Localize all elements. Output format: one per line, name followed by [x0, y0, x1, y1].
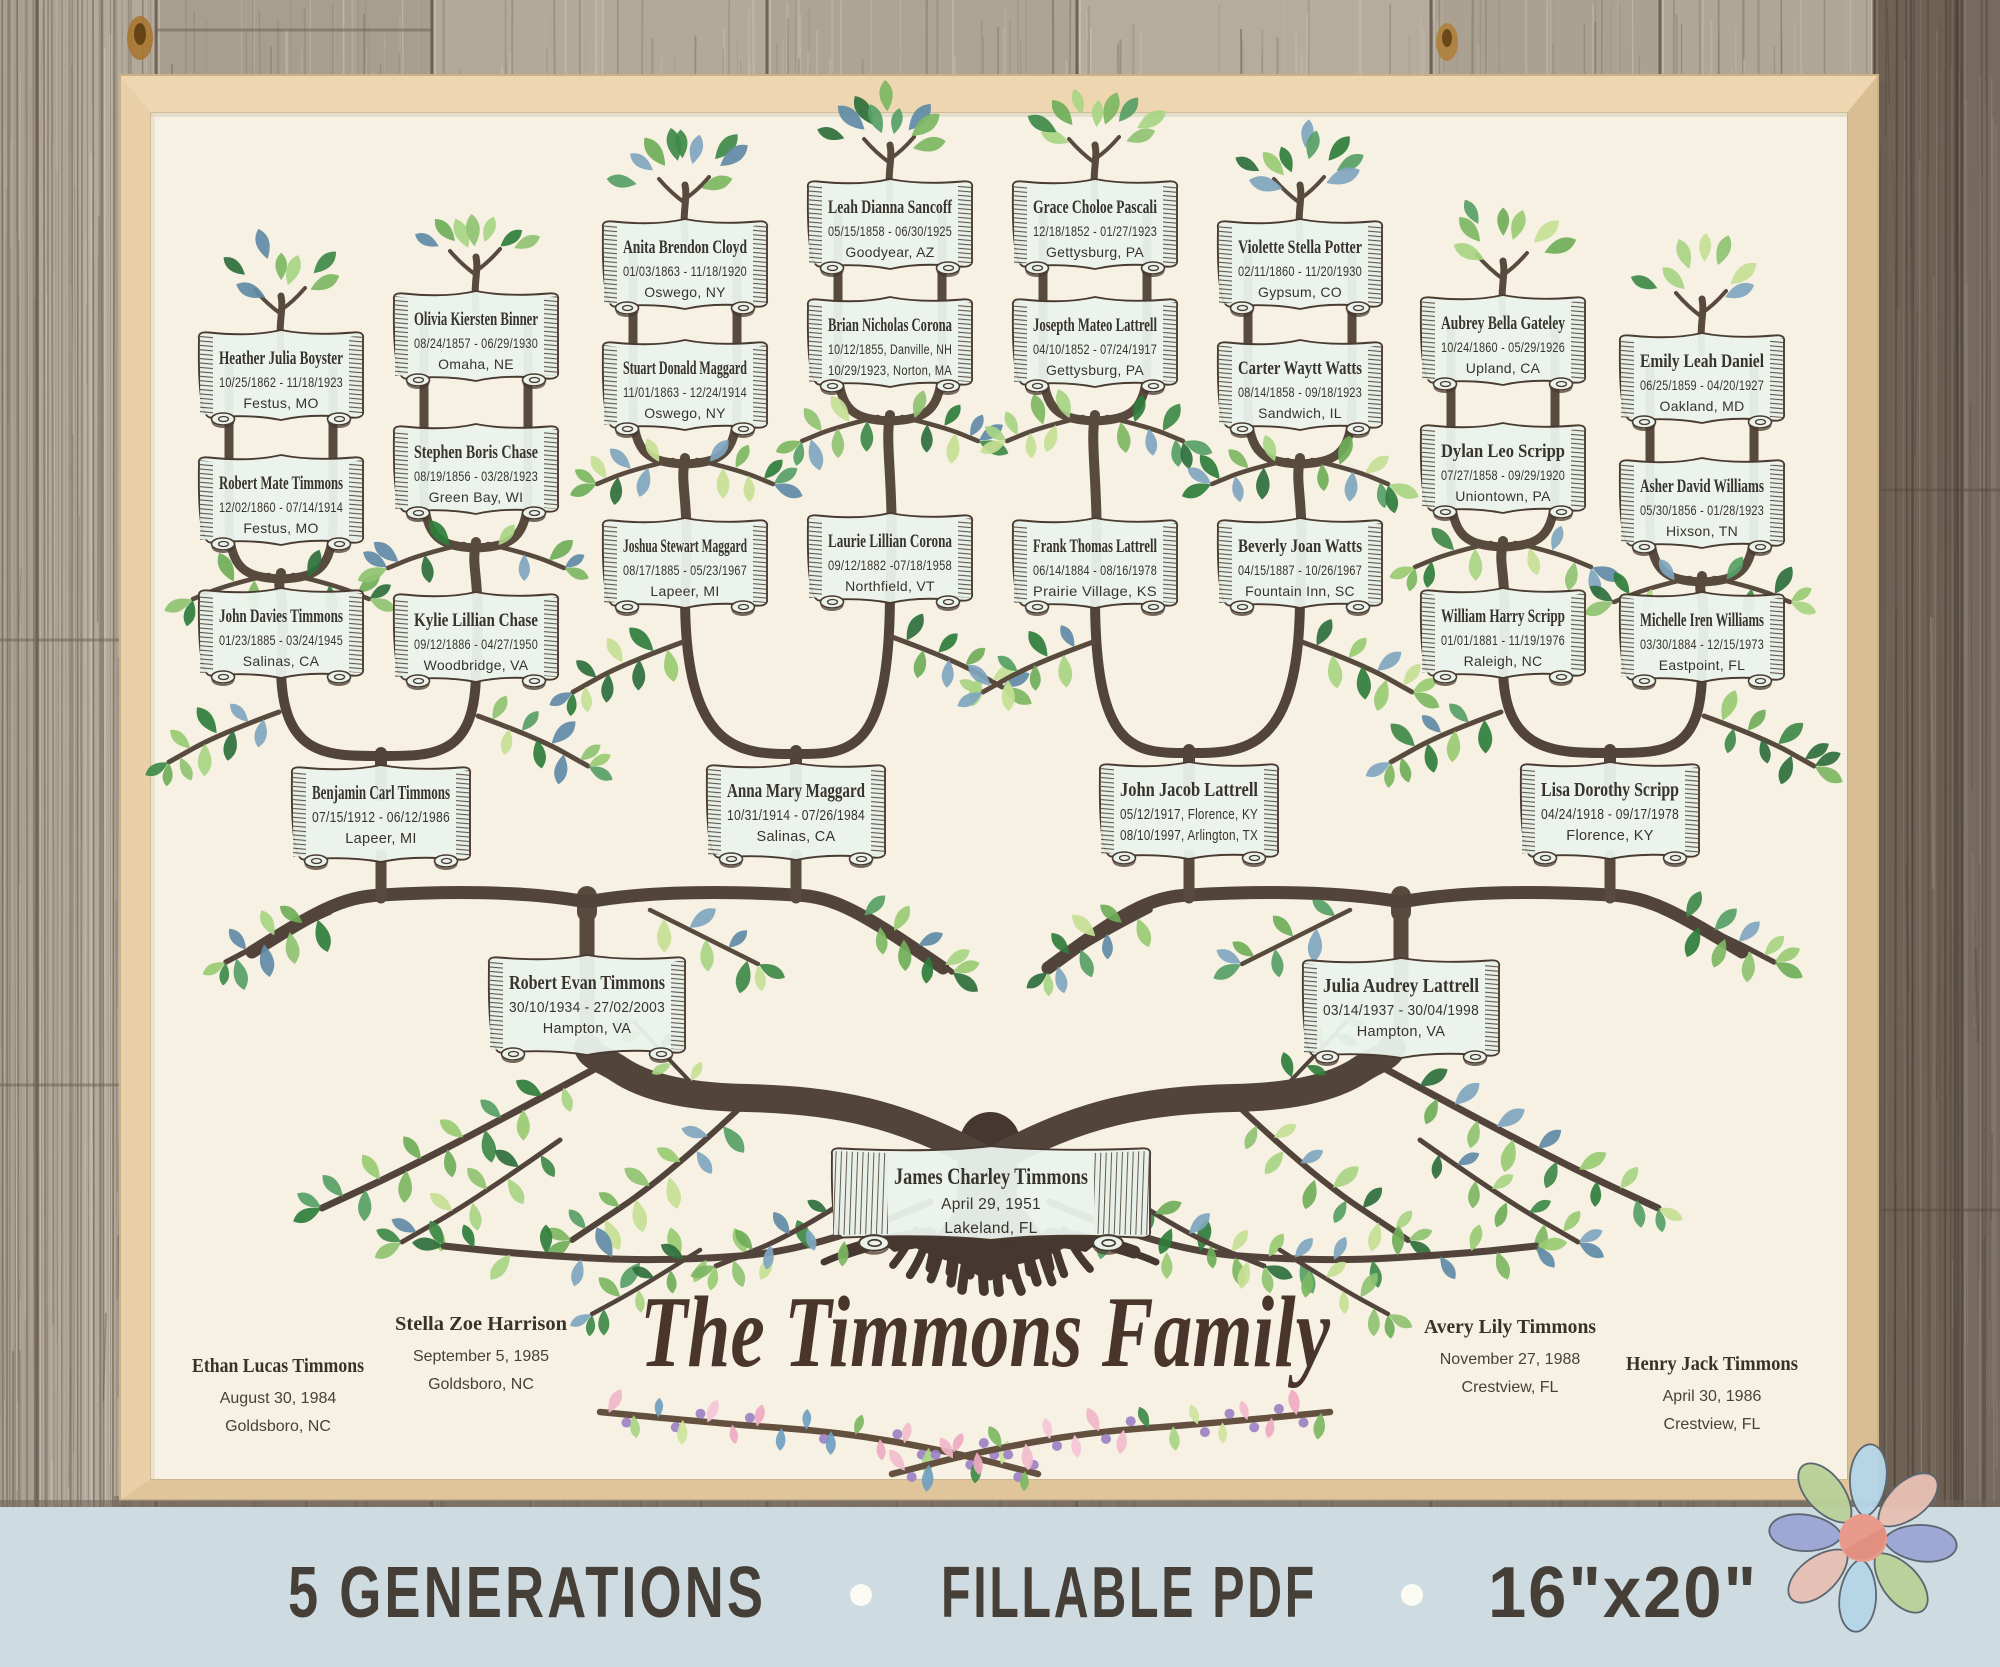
svg-text:11/01/1863 - 12/24/1914: 11/01/1863 - 12/24/1914	[623, 384, 747, 400]
svg-text:01/03/1863 - 11/18/1920: 01/03/1863 - 11/18/1920	[623, 263, 747, 279]
svg-text:April 30, 1986: April 30, 1986	[1663, 1388, 1762, 1405]
svg-text:Prairie Village, KS: Prairie Village, KS	[1033, 583, 1157, 599]
svg-text:John Jacob Lattrell: John Jacob Lattrell	[1120, 779, 1258, 801]
svg-text:Crestview, FL: Crestview, FL	[1664, 1416, 1761, 1433]
svg-text:Robert Mate Timmons: Robert Mate Timmons	[219, 473, 343, 494]
svg-text:Fountain Inn, SC: Fountain Inn, SC	[1245, 583, 1355, 599]
svg-text:Goldsboro, NC: Goldsboro, NC	[428, 1376, 534, 1393]
svg-text:Leah Dianna Sancoff: Leah Dianna Sancoff	[828, 197, 952, 218]
svg-text:04/24/1918 - 09/17/1978: 04/24/1918 - 09/17/1978	[1541, 807, 1679, 823]
svg-text:12/02/1860 - 07/14/1914: 12/02/1860 - 07/14/1914	[219, 499, 343, 515]
svg-text:Hampton, VA: Hampton, VA	[543, 1021, 631, 1037]
svg-text:William Harry Scripp: William Harry Scripp	[1441, 606, 1565, 627]
svg-text:04/15/1887 - 10/26/1967: 04/15/1887 - 10/26/1967	[1238, 562, 1362, 578]
svg-text:Gypsum, CO: Gypsum, CO	[1258, 284, 1342, 300]
svg-text:Upland, CA: Upland, CA	[1466, 360, 1541, 376]
svg-text:Beverly Joan Watts: Beverly Joan Watts	[1238, 536, 1362, 557]
svg-text:10/24/1860 - 05/29/1926: 10/24/1860 - 05/29/1926	[1441, 339, 1565, 355]
svg-text:16"x20": 16"x20"	[1488, 1553, 1758, 1633]
svg-text:Gettysburg, PA: Gettysburg, PA	[1046, 362, 1144, 378]
svg-text:04/10/1852 - 07/24/1917: 04/10/1852 - 07/24/1917	[1033, 341, 1157, 357]
svg-text:03/14/1937 - 30/04/1998: 03/14/1937 - 30/04/1998	[1323, 1003, 1479, 1019]
svg-text:07/15/1912 - 06/12/1986: 07/15/1912 - 06/12/1986	[312, 810, 450, 826]
svg-text:Omaha, NE: Omaha, NE	[438, 356, 514, 372]
svg-text:Olivia Kiersten Binner: Olivia Kiersten Binner	[414, 309, 538, 330]
svg-text:Gettysburg, PA: Gettysburg, PA	[1046, 244, 1144, 260]
svg-text:Salinas, CA: Salinas, CA	[756, 829, 835, 845]
svg-text:FILLABLE PDF: FILLABLE PDF	[941, 1553, 1317, 1633]
svg-text:Frank Thomas Lattrell: Frank Thomas Lattrell	[1033, 536, 1157, 557]
svg-text:10/25/1862 - 11/18/1923: 10/25/1862 - 11/18/1923	[219, 374, 343, 390]
svg-text:09/12/1882 -07/18/1958: 09/12/1882 -07/18/1958	[828, 557, 952, 573]
svg-text:10/29/1923, Norton, MA: 10/29/1923, Norton, MA	[828, 362, 952, 378]
svg-text:Lisa Dorothy Scripp: Lisa Dorothy Scripp	[1541, 779, 1679, 801]
svg-text:Crestview, FL: Crestview, FL	[1462, 1379, 1559, 1396]
svg-text:Woodbridge, VA: Woodbridge, VA	[424, 657, 529, 673]
svg-text:Festus, MO: Festus, MO	[243, 395, 318, 411]
svg-text:06/14/1884 - 08/16/1978: 06/14/1884 - 08/16/1978	[1033, 562, 1157, 578]
svg-text:Heather Julia Boyster: Heather Julia Boyster	[219, 348, 343, 369]
svg-text:Asher David Williams: Asher David Williams	[1640, 476, 1764, 497]
svg-text:Northfield, VT: Northfield, VT	[845, 578, 935, 594]
svg-text:09/12/1886 - 04/27/1950: 09/12/1886 - 04/27/1950	[414, 636, 538, 652]
svg-text:Anita Brendon Cloyd: Anita Brendon Cloyd	[623, 237, 747, 258]
svg-text:Carter Waytt Watts: Carter Waytt Watts	[1238, 358, 1362, 379]
svg-text:08/24/1857 - 06/29/1930: 08/24/1857 - 06/29/1930	[414, 335, 538, 351]
svg-text:05/30/1856 - 01/28/1923: 05/30/1856 - 01/28/1923	[1640, 502, 1764, 518]
svg-text:10/31/1914 - 07/26/1984: 10/31/1914 - 07/26/1984	[727, 808, 865, 824]
svg-text:Laurie Lillian Corona: Laurie Lillian Corona	[828, 531, 952, 552]
svg-text:Lakeland, FL: Lakeland, FL	[944, 1220, 1037, 1237]
svg-text:November 27, 1988: November 27, 1988	[1440, 1351, 1581, 1368]
svg-text:Michelle Iren Williams: Michelle Iren Williams	[1640, 610, 1764, 631]
svg-text:Grace Choloe Pascali: Grace Choloe Pascali	[1033, 197, 1157, 218]
svg-text:08/10/1997, Arlington, TX: 08/10/1997, Arlington, TX	[1120, 828, 1258, 844]
svg-text:Florence, KY: Florence, KY	[1566, 828, 1653, 844]
svg-text:Salinas, CA: Salinas, CA	[243, 653, 320, 669]
svg-text:Robert Evan Timmons: Robert Evan Timmons	[509, 972, 665, 994]
svg-text:30/10/1934 - 27/02/2003: 30/10/1934 - 27/02/2003	[509, 1000, 665, 1016]
svg-text:Oswego, NY: Oswego, NY	[644, 284, 726, 300]
svg-text:Hampton, VA: Hampton, VA	[1357, 1024, 1445, 1040]
svg-text:Julia Audrey Lattrell: Julia Audrey Lattrell	[1323, 975, 1479, 997]
svg-text:05/15/1858 - 06/30/1925: 05/15/1858 - 06/30/1925	[828, 223, 952, 239]
svg-text:02/11/1860 - 11/20/1930: 02/11/1860 - 11/20/1930	[1238, 263, 1362, 279]
svg-text:5 GENERATIONS: 5 GENERATIONS	[288, 1553, 766, 1633]
svg-text:The Timmons Family: The Timmons Family	[640, 1276, 1331, 1389]
svg-text:John Davies Timmons: John Davies Timmons	[219, 606, 343, 627]
svg-text:Aubrey Bella Gateley: Aubrey Bella Gateley	[1441, 313, 1565, 334]
svg-text:Goodyear, AZ: Goodyear, AZ	[845, 244, 934, 260]
svg-text:Uniontown, PA: Uniontown, PA	[1455, 488, 1551, 504]
svg-text:August 30, 1984: August 30, 1984	[220, 1390, 337, 1407]
svg-text:06/25/1859 - 04/20/1927: 06/25/1859 - 04/20/1927	[1640, 377, 1764, 393]
svg-text:05/12/1917, Florence, KY: 05/12/1917, Florence, KY	[1120, 807, 1258, 823]
svg-text:Hixson, TN: Hixson, TN	[1666, 523, 1738, 539]
svg-text:07/27/1858 - 09/29/1920: 07/27/1858 - 09/29/1920	[1441, 467, 1565, 483]
svg-text:Anna Mary Maggard: Anna Mary Maggard	[727, 780, 865, 802]
svg-text:Green Bay, WI: Green Bay, WI	[429, 489, 524, 505]
svg-text:Lapeer, MI: Lapeer, MI	[345, 831, 417, 847]
svg-text:03/30/1884 - 12/15/1973: 03/30/1884 - 12/15/1973	[1640, 636, 1764, 652]
svg-text:Emily Leah Daniel: Emily Leah Daniel	[1640, 351, 1764, 372]
svg-text:01/01/1881 - 11/19/1976: 01/01/1881 - 11/19/1976	[1441, 632, 1565, 648]
svg-text:Joshua Stewart Maggard: Joshua Stewart Maggard	[623, 536, 747, 557]
svg-text:Violette Stella Potter: Violette Stella Potter	[1238, 237, 1362, 258]
svg-text:08/17/1885 - 05/23/1967: 08/17/1885 - 05/23/1967	[623, 562, 747, 578]
svg-text:Oakland, MD: Oakland, MD	[1660, 398, 1745, 414]
svg-text:Eastpoint, FL: Eastpoint, FL	[1659, 657, 1745, 673]
svg-text:Raleigh, NC: Raleigh, NC	[1464, 653, 1543, 669]
svg-text:Henry Jack Timmons: Henry Jack Timmons	[1626, 1353, 1798, 1375]
svg-text:Goldsboro, NC: Goldsboro, NC	[225, 1418, 331, 1435]
svg-text:Kylie Lillian Chase: Kylie Lillian Chase	[414, 610, 538, 631]
svg-text:Brian Nicholas Corona: Brian Nicholas Corona	[828, 315, 952, 336]
svg-text:Josepth Mateo Lattrell: Josepth Mateo Lattrell	[1033, 315, 1157, 336]
svg-text:Lapeer, MI: Lapeer, MI	[650, 583, 719, 599]
svg-text:10/12/1855, Danville, NH: 10/12/1855, Danville, NH	[828, 341, 952, 357]
svg-text:Avery Lily Timmons: Avery Lily Timmons	[1424, 1316, 1596, 1338]
svg-text:Dylan Leo Scripp: Dylan Leo Scripp	[1441, 441, 1565, 462]
svg-text:12/18/1852 - 01/27/1923: 12/18/1852 - 01/27/1923	[1033, 223, 1157, 239]
svg-text:September 5, 1985: September 5, 1985	[413, 1348, 549, 1365]
svg-text:Stuart Donald Maggard: Stuart Donald Maggard	[623, 358, 747, 379]
svg-text:Oswego, NY: Oswego, NY	[644, 405, 726, 421]
svg-text:James Charley Timmons: James Charley Timmons	[894, 1164, 1088, 1189]
svg-text:April 29, 1951: April 29, 1951	[941, 1196, 1041, 1213]
svg-text:Benjamin Carl Timmons: Benjamin Carl Timmons	[312, 782, 450, 804]
svg-text:08/14/1858 - 09/18/1923: 08/14/1858 - 09/18/1923	[1238, 384, 1362, 400]
svg-text:Stella Zoe Harrison: Stella Zoe Harrison	[395, 1313, 568, 1335]
svg-text:01/23/1885 - 03/24/1945: 01/23/1885 - 03/24/1945	[219, 632, 343, 648]
svg-text:Stephen Boris Chase: Stephen Boris Chase	[414, 442, 538, 463]
svg-text:08/19/1856 - 03/28/1923: 08/19/1856 - 03/28/1923	[414, 468, 538, 484]
svg-text:Ethan Lucas Timmons: Ethan Lucas Timmons	[192, 1355, 364, 1377]
svg-text:Sandwich, IL: Sandwich, IL	[1258, 405, 1342, 421]
svg-text:Festus, MO: Festus, MO	[243, 520, 318, 536]
